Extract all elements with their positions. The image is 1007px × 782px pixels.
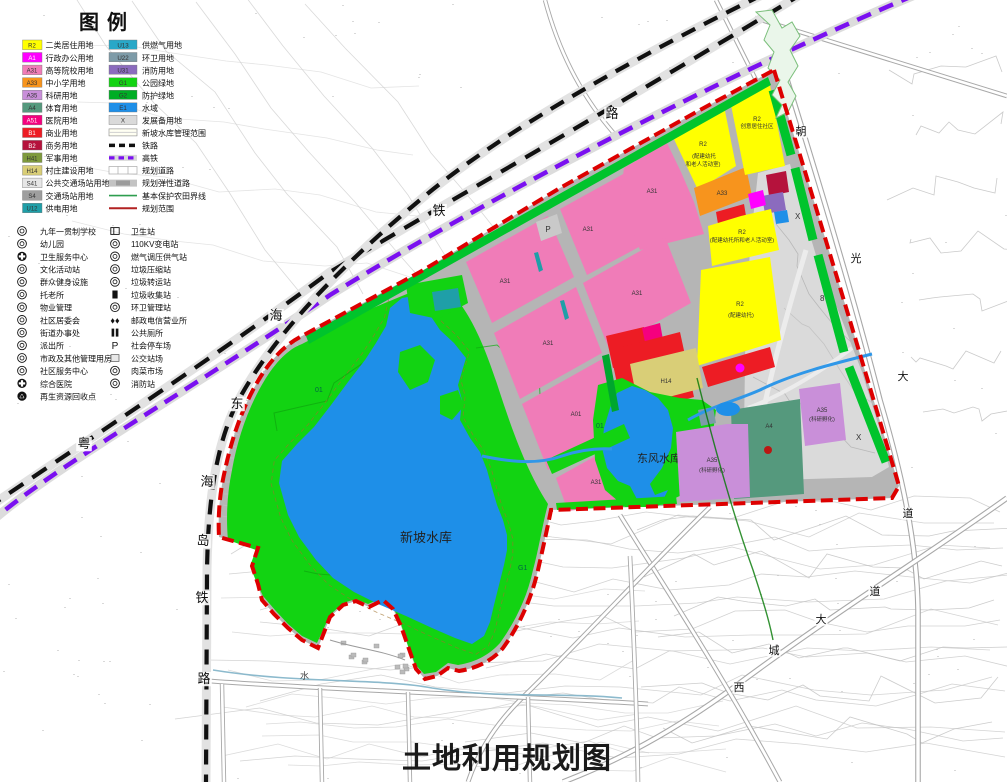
svg-text:二类居住用地: 二类居住用地 [46, 40, 94, 50]
svg-text:A4: A4 [28, 106, 36, 112]
svg-text:东: 东 [230, 396, 243, 411]
svg-text:R2: R2 [738, 230, 746, 236]
svg-text:R2: R2 [28, 43, 36, 49]
svg-text:邮政电信营业所: 邮政电信营业所 [131, 315, 187, 325]
svg-text:U31: U31 [117, 68, 129, 75]
svg-text:垃圾压缩站: 垃圾压缩站 [131, 265, 171, 275]
svg-text:路: 路 [197, 671, 210, 686]
svg-text:和老人活动室): 和老人活动室) [686, 160, 721, 168]
svg-text:新坡水库管理范围: 新坡水库管理范围 [142, 128, 206, 138]
svg-text:派出所: 派出所 [40, 341, 64, 351]
svg-text:基本保护农田界线: 基本保护农田界线 [142, 191, 206, 201]
svg-text:A31: A31 [583, 227, 594, 233]
svg-text:(配建幼托): (配建幼托) [728, 311, 754, 319]
svg-text:燃气调压供气站: 燃气调压供气站 [131, 252, 187, 262]
svg-text:R2: R2 [699, 142, 707, 148]
svg-text:B2: B2 [28, 144, 36, 150]
svg-text:体育用地: 体育用地 [46, 103, 78, 113]
svg-text:公共交通场站用地: 公共交通场站用地 [46, 178, 110, 188]
svg-text:铁: 铁 [432, 203, 445, 218]
svg-text:A31: A31 [591, 480, 602, 486]
svg-text:P: P [112, 341, 119, 352]
svg-text:G1: G1 [518, 565, 527, 572]
svg-text:A33: A33 [27, 81, 38, 87]
svg-text:社区居委会: 社区居委会 [40, 315, 80, 325]
svg-text:西: 西 [734, 682, 745, 694]
svg-text:水: 水 [300, 670, 309, 681]
svg-text:九年一贯制学校: 九年一贯制学校 [40, 226, 96, 236]
svg-text:道: 道 [903, 506, 914, 520]
svg-text:行政办公用地: 行政办公用地 [46, 53, 94, 63]
svg-text:垃圾转运站: 垃圾转运站 [131, 277, 171, 287]
svg-text:01: 01 [596, 423, 604, 430]
svg-text:E1: E1 [119, 105, 127, 112]
svg-text:公共厕所: 公共厕所 [131, 328, 163, 338]
svg-text:军事用地: 军事用地 [46, 153, 78, 163]
svg-text:01: 01 [315, 387, 323, 394]
svg-text:市政及其他管理用房: 市政及其他管理用房 [40, 353, 112, 363]
svg-text:铁路: 铁路 [142, 141, 158, 151]
svg-text:供燃气用地: 供燃气用地 [142, 40, 182, 50]
svg-text:环卫用地: 环卫用地 [142, 53, 174, 63]
svg-text:♺: ♺ [19, 394, 24, 401]
svg-text:A33: A33 [717, 191, 728, 197]
svg-text:再生资源回收点: 再生资源回收点 [40, 392, 96, 402]
svg-text:U12: U12 [26, 207, 38, 213]
svg-text:道: 道 [870, 584, 881, 598]
svg-text:海: 海 [269, 308, 282, 323]
svg-text:(配建幼托所和老人活动室): (配建幼托所和老人活动室) [710, 236, 774, 244]
svg-text:S41: S41 [27, 182, 38, 188]
svg-text:110KV变电站: 110KV变电站 [131, 239, 178, 249]
svg-text:G2: G2 [119, 93, 128, 100]
svg-text:A31: A31 [632, 291, 643, 297]
svg-text:X: X [121, 118, 125, 125]
svg-text:大: 大 [816, 612, 827, 626]
svg-text:U13: U13 [117, 42, 129, 49]
svg-text:环卫管理站: 环卫管理站 [131, 303, 171, 313]
svg-text:幼儿园: 幼儿园 [40, 239, 64, 249]
svg-text:A4: A4 [765, 424, 773, 430]
svg-text:社区服务中心: 社区服务中心 [40, 366, 88, 376]
svg-text:大: 大 [898, 369, 909, 383]
svg-text:图例: 图例 [79, 10, 135, 34]
svg-text:朝: 朝 [796, 125, 807, 138]
svg-text:A31: A31 [27, 69, 38, 75]
svg-text:公交站场: 公交站场 [131, 353, 163, 363]
svg-text:街道办事处: 街道办事处 [40, 328, 80, 338]
svg-text:商务用地: 商务用地 [46, 141, 78, 151]
svg-text:城: 城 [769, 644, 780, 657]
svg-text:防护绿地: 防护绿地 [142, 90, 174, 100]
svg-text:医院用地: 医院用地 [46, 116, 78, 126]
svg-text:新坡水库: 新坡水库 [400, 530, 452, 545]
svg-text:托老所: 托老所 [40, 290, 64, 300]
svg-text:R2: R2 [753, 117, 761, 123]
svg-text:R2: R2 [736, 302, 744, 308]
svg-text:高等院校用地: 高等院校用地 [46, 65, 94, 75]
svg-text:消防用地: 消防用地 [142, 65, 174, 75]
svg-text:垃圾收集站: 垃圾收集站 [131, 290, 171, 300]
svg-text:公园绿地: 公园绿地 [142, 78, 174, 88]
svg-text:H14: H14 [26, 169, 38, 175]
svg-text:规划弹性道路: 规划弹性道路 [142, 178, 190, 188]
svg-text:创意居住社区: 创意居住社区 [740, 122, 774, 130]
svg-text:土地利用规划图: 土地利用规划图 [402, 742, 612, 775]
svg-text:发展备用地: 发展备用地 [142, 116, 182, 126]
svg-text:铁: 铁 [195, 590, 208, 605]
svg-text:综合医院: 综合医院 [40, 379, 72, 389]
svg-text:规划道路: 规划道路 [142, 166, 174, 176]
svg-text:科研用地: 科研用地 [46, 90, 78, 100]
svg-text:A31: A31 [647, 189, 658, 195]
svg-text:商业用地: 商业用地 [46, 128, 78, 138]
svg-text:规划范围: 规划范围 [142, 203, 174, 213]
svg-text:A1: A1 [28, 56, 36, 62]
svg-text:X: X [795, 212, 801, 221]
svg-text:A35: A35 [707, 458, 718, 464]
svg-text:社会停车场: 社会停车场 [131, 341, 171, 351]
svg-text:高铁: 高铁 [142, 153, 158, 163]
svg-text:A51: A51 [27, 119, 38, 125]
svg-text:肉菜市场: 肉菜市场 [131, 366, 163, 376]
svg-text:S4: S4 [28, 194, 36, 200]
svg-text:文化活动站: 文化活动站 [40, 265, 80, 275]
svg-text:B1: B1 [28, 131, 36, 137]
svg-text:东风水库: 东风水库 [637, 452, 681, 465]
svg-text:(配建幼托: (配建幼托 [692, 152, 716, 160]
svg-text:H41: H41 [26, 156, 38, 162]
svg-text:群众健身设施: 群众健身设施 [40, 277, 88, 287]
svg-text:A35: A35 [817, 408, 828, 414]
svg-text:卫生站: 卫生站 [131, 226, 155, 236]
svg-text:(科研孵化): (科研孵化) [809, 415, 835, 423]
svg-text:X: X [856, 433, 862, 442]
svg-text:交通场站用地: 交通场站用地 [46, 191, 94, 201]
svg-text:A31: A31 [500, 279, 511, 285]
svg-text:海: 海 [200, 474, 213, 489]
svg-text:H14: H14 [660, 379, 672, 385]
svg-text:♦♦: ♦♦ [110, 315, 120, 325]
svg-text:卫生服务中心: 卫生服务中心 [40, 252, 88, 262]
svg-text:水域: 水域 [142, 103, 158, 113]
svg-text:中小学用地: 中小学用地 [46, 78, 86, 88]
svg-text:光: 光 [851, 251, 862, 265]
svg-text:G1: G1 [119, 80, 128, 87]
svg-text:物业管理: 物业管理 [40, 303, 72, 313]
svg-text:岛: 岛 [196, 533, 209, 548]
svg-text:粤: 粤 [77, 436, 90, 451]
svg-text:村庄建设用地: 村庄建设用地 [46, 166, 94, 176]
svg-text:P: P [545, 225, 550, 234]
svg-text:供电用地: 供电用地 [46, 203, 78, 213]
svg-text:U22: U22 [117, 55, 129, 62]
svg-text:A31: A31 [543, 341, 554, 347]
svg-text:A01: A01 [571, 412, 582, 418]
svg-text:路: 路 [605, 106, 618, 121]
svg-text:消防站: 消防站 [131, 379, 155, 389]
svg-text:A35: A35 [27, 94, 38, 100]
